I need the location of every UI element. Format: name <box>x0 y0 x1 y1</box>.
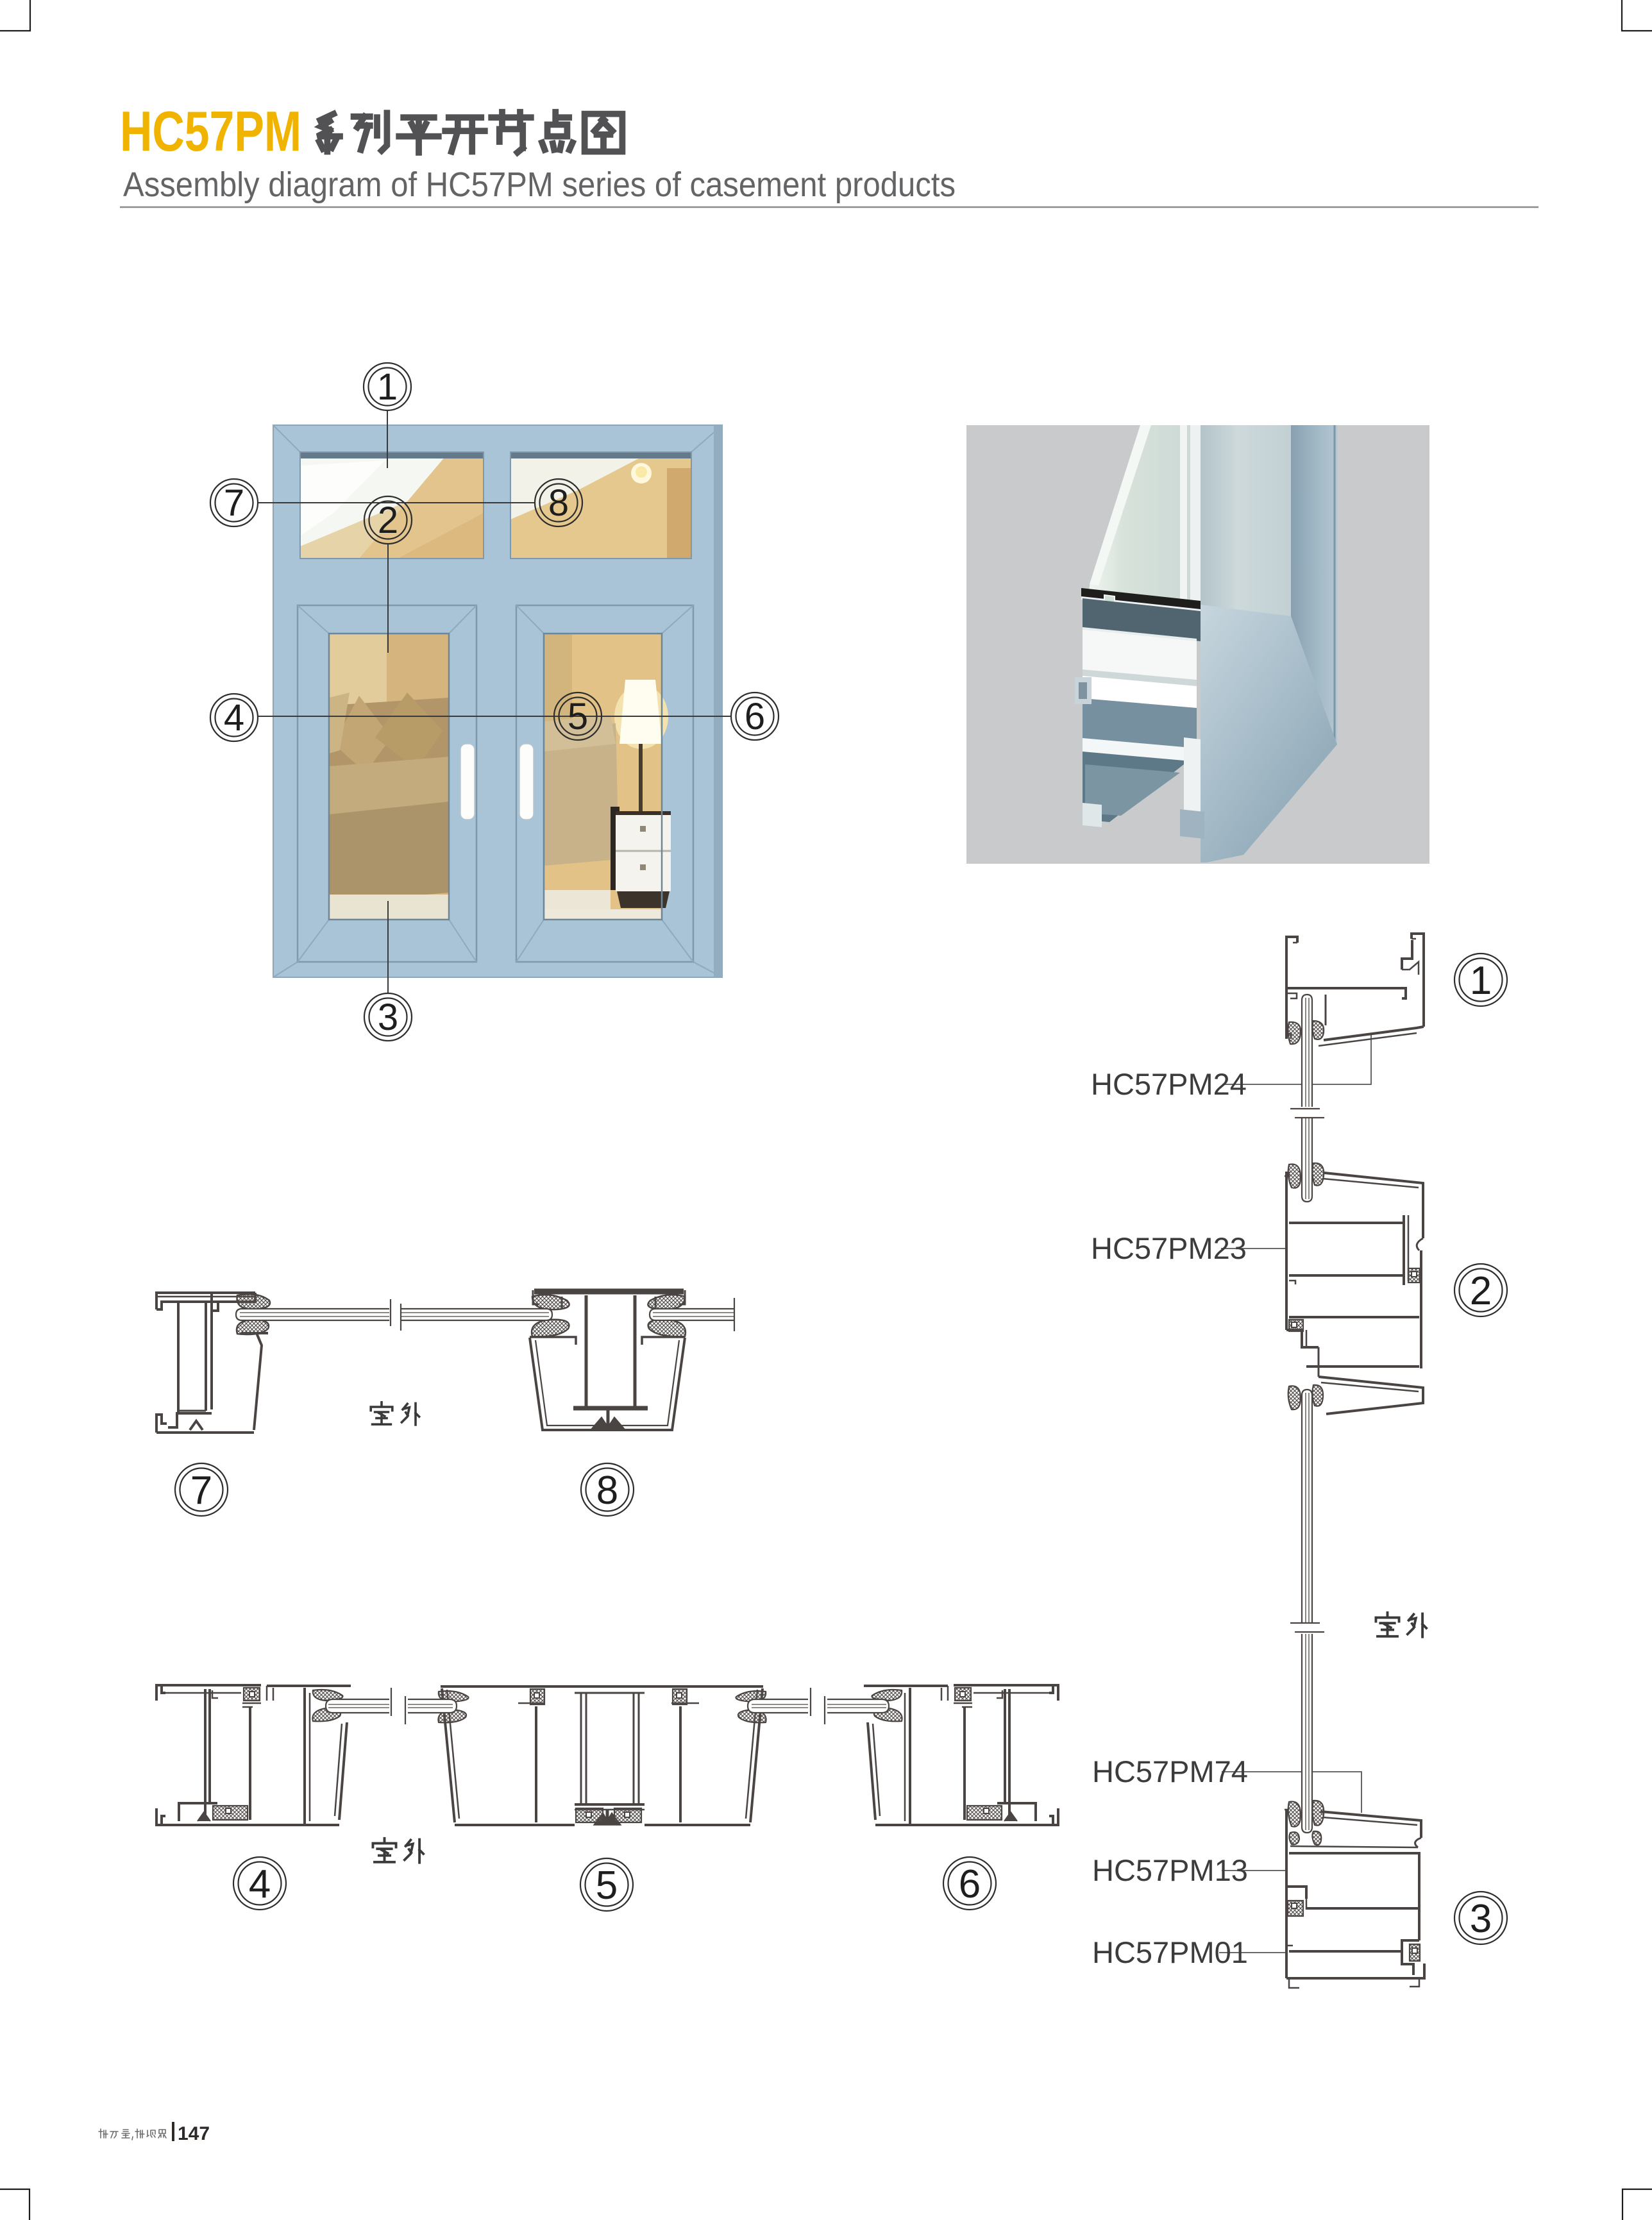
svg-text:4: 4 <box>249 1862 271 1906</box>
svg-text:6: 6 <box>745 696 765 737</box>
svg-text:Assembly diagram of HC57PM ser: Assembly diagram of HC57PM series of cas… <box>123 165 956 204</box>
svg-text:4: 4 <box>224 697 244 739</box>
svg-text:2: 2 <box>1470 1269 1492 1313</box>
svg-text:1: 1 <box>1470 959 1492 1003</box>
svg-text:8: 8 <box>548 482 569 524</box>
svg-text:6: 6 <box>959 1862 981 1906</box>
svg-text:5: 5 <box>596 1863 618 1908</box>
svg-text:7: 7 <box>224 482 244 524</box>
svg-text:HC57PM74: HC57PM74 <box>1092 1754 1248 1788</box>
svg-text:HC57PM13: HC57PM13 <box>1092 1853 1248 1887</box>
svg-text:8: 8 <box>596 1468 618 1513</box>
svg-text:7: 7 <box>190 1468 212 1513</box>
svg-text:147: 147 <box>178 2123 210 2144</box>
svg-text:2: 2 <box>378 500 398 541</box>
svg-text:HC57PM: HC57PM <box>120 99 301 163</box>
svg-text:HC57PM01: HC57PM01 <box>1092 1935 1248 1969</box>
svg-text:HC57PM23: HC57PM23 <box>1091 1231 1247 1265</box>
svg-text:1: 1 <box>377 366 398 408</box>
svg-text:3: 3 <box>1470 1897 1492 1941</box>
svg-text:3: 3 <box>378 996 398 1038</box>
svg-text:5: 5 <box>568 696 588 737</box>
svg-text:HC57PM24: HC57PM24 <box>1091 1067 1247 1101</box>
